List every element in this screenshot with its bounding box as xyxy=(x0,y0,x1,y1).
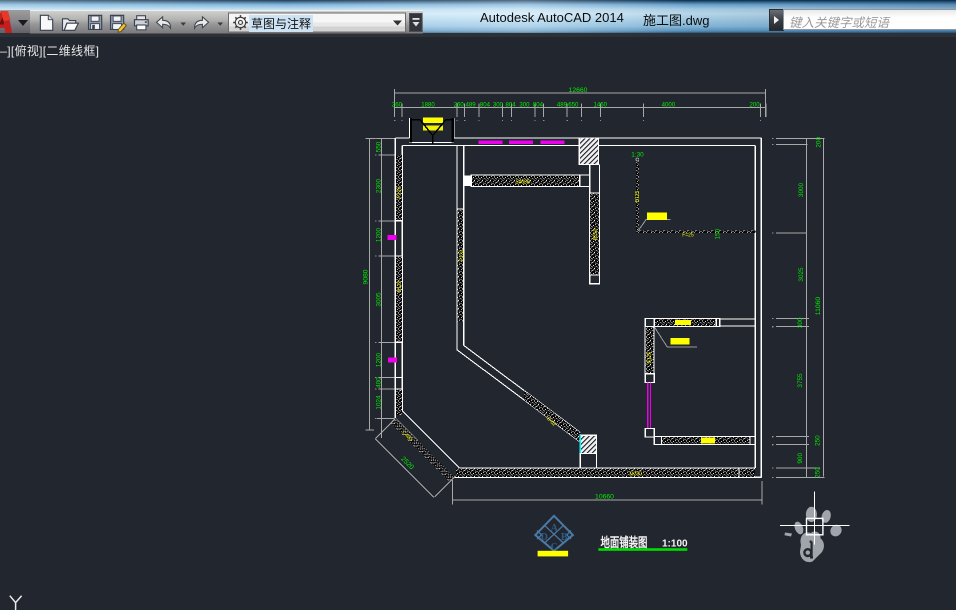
svg-text:F=25: F=25 xyxy=(682,232,694,238)
svg-text:400: 400 xyxy=(376,377,383,388)
svg-text:3000: 3000 xyxy=(798,182,805,197)
svg-text:260: 260 xyxy=(392,102,403,109)
svg-text:P120: P120 xyxy=(460,250,466,262)
svg-text:900: 900 xyxy=(797,453,804,464)
svg-text:B125: B125 xyxy=(635,190,641,202)
svg-text:1200: 1200 xyxy=(376,352,383,367)
svg-text:2520: 2520 xyxy=(399,456,415,472)
svg-text:250: 250 xyxy=(815,435,822,446)
svg-text:300: 300 xyxy=(519,102,530,109)
svg-text:2300: 2300 xyxy=(376,178,383,193)
svg-text:804: 804 xyxy=(533,102,544,109)
svg-text:1024: 1024 xyxy=(376,395,383,410)
svg-text:200: 200 xyxy=(816,137,823,148)
svg-text:3005: 3005 xyxy=(376,292,383,307)
svg-text:1880: 1880 xyxy=(421,102,435,109)
svg-text:1460: 1460 xyxy=(594,102,608,109)
svg-text:300: 300 xyxy=(493,102,504,109)
svg-text:P125: P125 xyxy=(397,187,403,199)
svg-text:1:30: 1:30 xyxy=(631,152,644,159)
svg-text:150: 150 xyxy=(715,228,722,239)
svg-text:260: 260 xyxy=(454,102,465,109)
svg-text:5400B: 5400B xyxy=(516,179,531,185)
svg-text:250: 250 xyxy=(815,467,822,478)
svg-text:D: D xyxy=(541,532,548,543)
svg-text:B250: B250 xyxy=(593,228,599,240)
svg-text:200: 200 xyxy=(750,102,761,109)
svg-text:12660: 12660 xyxy=(569,87,588,94)
svg-text:地面铺装图: 地面铺装图 xyxy=(601,534,648,550)
svg-text:4000: 4000 xyxy=(662,102,676,109)
svg-text:804: 804 xyxy=(506,102,517,109)
svg-text:10660: 10660 xyxy=(595,494,614,501)
svg-text:B: B xyxy=(561,532,568,543)
svg-text:9080: 9080 xyxy=(363,269,370,284)
svg-text:B120: B120 xyxy=(397,280,403,292)
svg-text:11060: 11060 xyxy=(815,297,822,316)
svg-text:M250: M250 xyxy=(630,471,643,477)
svg-text:3025: 3025 xyxy=(798,267,805,282)
svg-text:489: 489 xyxy=(557,102,568,109)
svg-text:300: 300 xyxy=(797,317,804,328)
svg-text:804: 804 xyxy=(480,102,491,109)
svg-text:1:100: 1:100 xyxy=(662,539,688,550)
svg-text:489: 489 xyxy=(466,102,477,109)
svg-text:550: 550 xyxy=(376,141,383,152)
svg-text:650: 650 xyxy=(568,102,579,109)
svg-text:1200: 1200 xyxy=(376,227,383,242)
svg-text:A: A xyxy=(551,523,559,534)
svg-text:B125: B125 xyxy=(647,352,653,364)
svg-text:3755: 3755 xyxy=(797,373,804,388)
